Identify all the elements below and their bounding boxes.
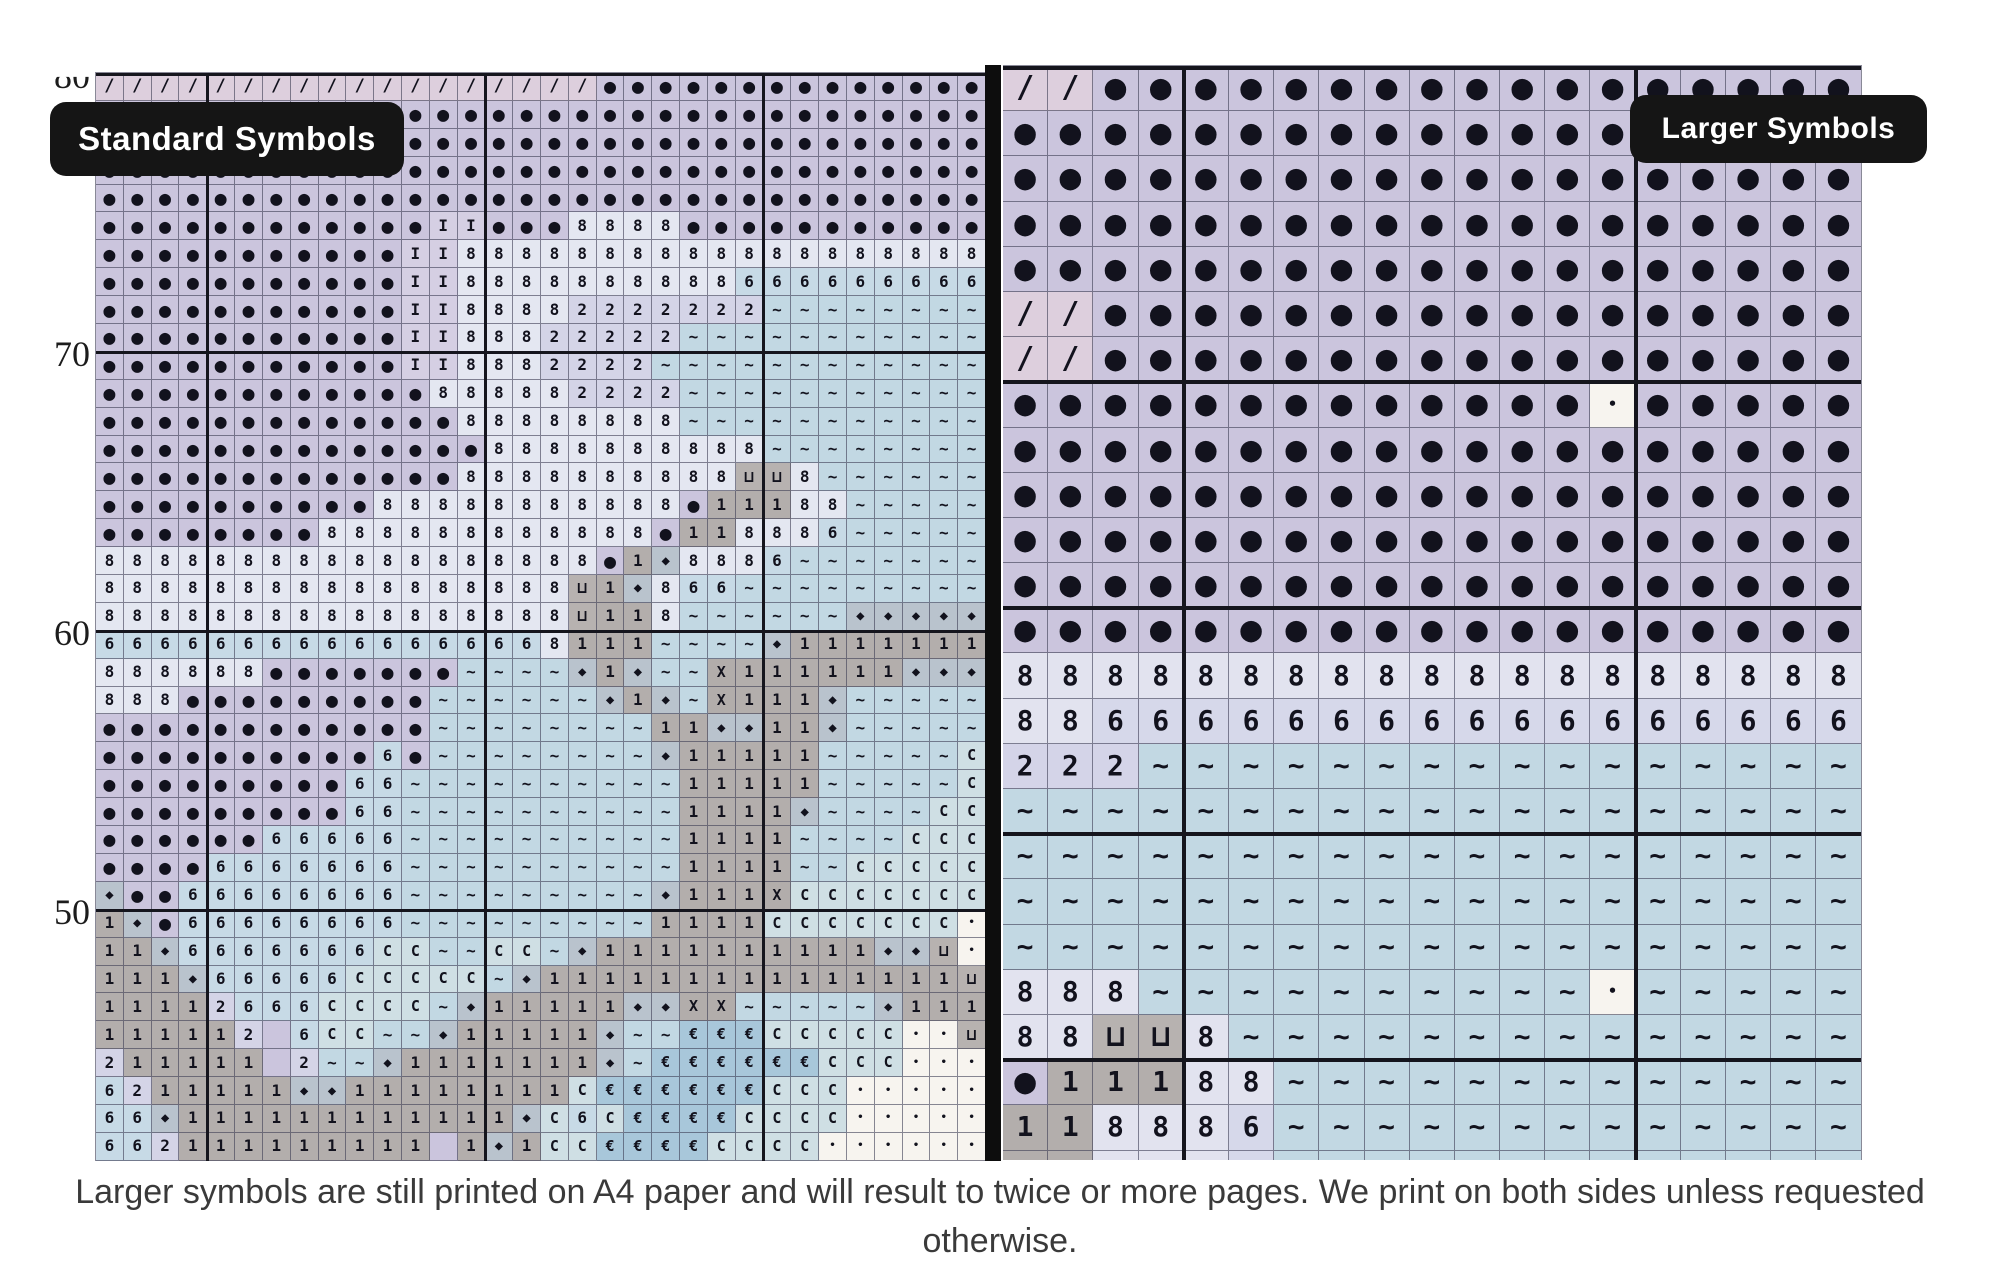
grid-cell: ● bbox=[235, 296, 263, 324]
grid-cell: 1 bbox=[764, 742, 792, 770]
grid-cell: ~ bbox=[1003, 879, 1048, 924]
grid-cell: / bbox=[291, 73, 319, 101]
grid-cell: ~ bbox=[1003, 834, 1048, 879]
grid-cell: ● bbox=[1636, 428, 1681, 473]
grid-cell: ● bbox=[430, 659, 458, 687]
grid-cell: ● bbox=[96, 268, 124, 296]
grid-cell: ● bbox=[152, 185, 180, 213]
grid-cell: • bbox=[819, 1133, 847, 1161]
grid-cell: ● bbox=[847, 101, 875, 129]
grid-cell: ~ bbox=[1545, 1015, 1590, 1060]
grid-cell: 8 bbox=[569, 463, 597, 491]
grid-cell: ● bbox=[346, 687, 374, 715]
grid-cell: 2 bbox=[652, 324, 680, 352]
grid-cell: ● bbox=[1590, 473, 1635, 518]
grid-cell: ~ bbox=[541, 659, 569, 687]
grid-cell: 8 bbox=[124, 659, 152, 687]
grid-cell: ~ bbox=[1455, 970, 1500, 1015]
grid-cell: ● bbox=[1139, 292, 1184, 337]
grid-cell: 1 bbox=[736, 854, 764, 882]
grid-cell: ● bbox=[207, 742, 235, 770]
grid-cell: ~ bbox=[1455, 1015, 1500, 1060]
grid-cell: ● bbox=[1500, 247, 1545, 292]
grid-cell: ~ bbox=[708, 631, 736, 659]
grid-cell: 1 bbox=[708, 910, 736, 938]
grid-cell: 8 bbox=[124, 547, 152, 575]
grid-cell: ~ bbox=[708, 603, 736, 631]
grid-cell: 8 bbox=[513, 324, 541, 352]
grid-cell: ~ bbox=[764, 352, 792, 380]
grid-cell: ● bbox=[1319, 247, 1364, 292]
grid-cell: ● bbox=[179, 826, 207, 854]
grid-cell: ~ bbox=[458, 770, 486, 798]
grid-cell: ~ bbox=[930, 463, 958, 491]
grid-cell: ● bbox=[207, 826, 235, 854]
grid-cell: 8 bbox=[597, 408, 625, 436]
grid-cell: 2 bbox=[541, 324, 569, 352]
grid-cell: 1 bbox=[485, 1077, 513, 1105]
grid-cell: ● bbox=[1048, 473, 1093, 518]
grid-cell: 1 bbox=[930, 631, 958, 659]
grid-cell: ~ bbox=[569, 770, 597, 798]
grid-cell: 6 bbox=[1184, 699, 1229, 744]
grid-cell: 8 bbox=[1681, 653, 1726, 698]
grid-cell: ● bbox=[1771, 247, 1816, 292]
grid-cell: ~ bbox=[847, 714, 875, 742]
grid-cell: 1 bbox=[96, 966, 124, 994]
grid-cell: ● bbox=[791, 212, 819, 240]
grid-cell: 1 bbox=[319, 1133, 347, 1161]
grid-cell: 6 bbox=[319, 631, 347, 659]
grid-cell: ⊔ bbox=[1093, 1015, 1138, 1060]
grid-cell: ◆ bbox=[624, 575, 652, 603]
grid-cell: X bbox=[708, 687, 736, 715]
grid-cell: 1 bbox=[235, 1049, 263, 1077]
major-grid-line-horizontal bbox=[96, 630, 985, 633]
grid-cell: ~ bbox=[708, 352, 736, 380]
grid-cell: 6 bbox=[152, 631, 180, 659]
grid-cell: € bbox=[764, 1049, 792, 1077]
grid-cell: ● bbox=[1274, 111, 1319, 156]
grid-cell: C bbox=[485, 938, 513, 966]
grid-cell: ● bbox=[1229, 382, 1274, 427]
grid-cell: 8 bbox=[958, 240, 985, 268]
grid-cell: ● bbox=[263, 659, 291, 687]
grid-cell: 8 bbox=[736, 436, 764, 464]
grid-cell: ~ bbox=[819, 547, 847, 575]
grid-cell: ● bbox=[1545, 473, 1590, 518]
grid-cell: ● bbox=[652, 73, 680, 101]
grid-cell: 1 bbox=[930, 993, 958, 1021]
grid-cell: ● bbox=[235, 463, 263, 491]
grid-cell: ● bbox=[1365, 292, 1410, 337]
grid-cell: 1 bbox=[680, 519, 708, 547]
grid-cell: 1 bbox=[513, 1133, 541, 1161]
major-grid-line-horizontal bbox=[96, 909, 985, 912]
grid-cell: ● bbox=[1410, 292, 1455, 337]
grid-cell: 6 bbox=[263, 631, 291, 659]
grid-cell: 6 bbox=[374, 854, 402, 882]
grid-cell: 1 bbox=[430, 1105, 458, 1133]
grid-cell: ● bbox=[207, 296, 235, 324]
grid-cell: ◆ bbox=[124, 910, 152, 938]
grid-cell: ● bbox=[1455, 428, 1500, 473]
grid-cell: ● bbox=[1184, 247, 1229, 292]
grid-cell: C bbox=[847, 854, 875, 882]
grid-cell: ~ bbox=[541, 770, 569, 798]
grid-cell: ~ bbox=[430, 687, 458, 715]
grid-cell: 8 bbox=[513, 408, 541, 436]
grid-cell: ~ bbox=[319, 1049, 347, 1077]
grid-cell: ● bbox=[1771, 156, 1816, 201]
grid-cell: ~ bbox=[930, 547, 958, 575]
grid-cell: ~ bbox=[569, 910, 597, 938]
grid-cell: ~ bbox=[1410, 1151, 1455, 1161]
grid-cell: • bbox=[847, 1077, 875, 1105]
grid-cell: ● bbox=[1274, 156, 1319, 201]
grid-cell: • bbox=[903, 1105, 931, 1133]
grid-cell: ~ bbox=[1365, 879, 1410, 924]
grid-cell: ~ bbox=[930, 770, 958, 798]
grid-cell: ● bbox=[1184, 563, 1229, 608]
chart-divider-bar bbox=[985, 65, 1001, 1161]
grid-cell: ~ bbox=[1726, 1015, 1771, 1060]
grid-cell: ● bbox=[1455, 473, 1500, 518]
grid-cell: 8 bbox=[1500, 653, 1545, 698]
grid-cell: ~ bbox=[597, 910, 625, 938]
grid-cell: ~ bbox=[1726, 879, 1771, 924]
grid-cell: ● bbox=[1184, 382, 1229, 427]
grid-cell: ● bbox=[1726, 202, 1771, 247]
grid-cell: 6 bbox=[791, 268, 819, 296]
grid-cell: ● bbox=[291, 714, 319, 742]
grid-cell: ● bbox=[1681, 247, 1726, 292]
grid-cell: ~ bbox=[736, 352, 764, 380]
grid-cell: ~ bbox=[736, 993, 764, 1021]
grid-cell: € bbox=[624, 1077, 652, 1105]
grid-cell: ● bbox=[1184, 608, 1229, 653]
grid-cell: C bbox=[930, 798, 958, 826]
grid-cell: ● bbox=[1319, 563, 1364, 608]
grid-cell: ● bbox=[179, 770, 207, 798]
grid-cell: ● bbox=[903, 73, 931, 101]
grid-cell: ● bbox=[179, 380, 207, 408]
grid-cell: ● bbox=[1545, 66, 1590, 111]
grid-cell: ~ bbox=[1681, 879, 1726, 924]
grid-cell: ● bbox=[1636, 292, 1681, 337]
grid-cell: C bbox=[903, 910, 931, 938]
grid-cell: C bbox=[736, 1133, 764, 1161]
grid-cell: ● bbox=[1636, 156, 1681, 201]
grid-cell: 1 bbox=[819, 966, 847, 994]
grid-cell: 1 bbox=[875, 659, 903, 687]
grid-cell: ~ bbox=[1816, 834, 1861, 879]
grid-cell: ~ bbox=[485, 798, 513, 826]
grid-cell: ● bbox=[708, 212, 736, 240]
grid-cell: 6 bbox=[124, 1133, 152, 1161]
grid-cell: 6 bbox=[1455, 699, 1500, 744]
grid-cell: ● bbox=[958, 157, 985, 185]
grid-cell: ~ bbox=[1636, 834, 1681, 879]
grid-cell: • bbox=[875, 1133, 903, 1161]
grid-cell: ~ bbox=[485, 714, 513, 742]
grid-cell: ~ bbox=[597, 826, 625, 854]
grid-cell: ● bbox=[402, 380, 430, 408]
grid-cell: ~ bbox=[736, 575, 764, 603]
grid-cell: ● bbox=[1771, 428, 1816, 473]
grid-cell: ~ bbox=[930, 687, 958, 715]
grid-cell: 8 bbox=[708, 268, 736, 296]
grid-cell: 8 bbox=[708, 463, 736, 491]
grid-cell: ● bbox=[1545, 337, 1590, 382]
grid-cell: ~ bbox=[1410, 879, 1455, 924]
grid-cell: 6 bbox=[96, 1133, 124, 1161]
grid-cell: 6 bbox=[263, 910, 291, 938]
grid-cell: 1 bbox=[1048, 1151, 1093, 1161]
grid-cell: ~ bbox=[819, 380, 847, 408]
grid-cell: ~ bbox=[875, 352, 903, 380]
grid-cell: 8 bbox=[847, 240, 875, 268]
grid-cell: ● bbox=[235, 436, 263, 464]
grid-cell: ● bbox=[875, 157, 903, 185]
grid-cell: ~ bbox=[541, 798, 569, 826]
grid-cell: 1 bbox=[764, 826, 792, 854]
grid-cell: 1 bbox=[652, 910, 680, 938]
grid-cell: ~ bbox=[930, 380, 958, 408]
grid-cell: ~ bbox=[485, 882, 513, 910]
grid-cell: ~ bbox=[458, 742, 486, 770]
grid-cell: 6 bbox=[1365, 699, 1410, 744]
grid-cell: 6 bbox=[346, 910, 374, 938]
grid-cell: ~ bbox=[1455, 879, 1500, 924]
grid-cell: ● bbox=[1455, 66, 1500, 111]
grid-cell: 1 bbox=[207, 1049, 235, 1077]
grid-cell: C bbox=[903, 826, 931, 854]
grid-cell: ● bbox=[1229, 66, 1274, 111]
grid-cell: ● bbox=[458, 436, 486, 464]
grid-cell: 8 bbox=[1410, 653, 1455, 698]
grid-cell: ● bbox=[1184, 156, 1229, 201]
grid-cell: ~ bbox=[1816, 744, 1861, 789]
grid-cell: ~ bbox=[1771, 1060, 1816, 1105]
row-number-60: 60 bbox=[26, 612, 90, 654]
grid-cell: / bbox=[207, 73, 235, 101]
grid-cell: 6 bbox=[319, 854, 347, 882]
grid-cell: ● bbox=[152, 798, 180, 826]
grid-cell: 1 bbox=[96, 1021, 124, 1049]
grid-cell: ● bbox=[597, 73, 625, 101]
grid-cell: ~ bbox=[819, 603, 847, 631]
grid-cell: C bbox=[764, 1105, 792, 1133]
grid-cell: 8 bbox=[930, 240, 958, 268]
grid-cell: ◆ bbox=[430, 1021, 458, 1049]
grid-cell: / bbox=[1048, 337, 1093, 382]
grid-cell: ● bbox=[1771, 337, 1816, 382]
grid-cell: 1 bbox=[235, 1077, 263, 1105]
grid-cell: ● bbox=[124, 519, 152, 547]
grid-cell: ~ bbox=[1410, 789, 1455, 834]
grid-cell: ~ bbox=[680, 603, 708, 631]
grid-cell: 8 bbox=[152, 659, 180, 687]
grid-cell: ● bbox=[1726, 292, 1771, 337]
grid-cell: ● bbox=[930, 212, 958, 240]
grid-cell: ● bbox=[1455, 292, 1500, 337]
grid-cell: 8 bbox=[541, 296, 569, 324]
grid-cell: ◆ bbox=[652, 993, 680, 1021]
grid-cell: ~ bbox=[1319, 879, 1364, 924]
grid-cell: C bbox=[847, 1049, 875, 1077]
grid-cell: 8 bbox=[458, 491, 486, 519]
grid-cell: ~ bbox=[903, 296, 931, 324]
grid-cell: 8 bbox=[485, 463, 513, 491]
grid-cell: ~ bbox=[1500, 879, 1545, 924]
grid-cell: ● bbox=[1274, 518, 1319, 563]
grid-cell: 8 bbox=[263, 547, 291, 575]
grid-cell: 1 bbox=[124, 1049, 152, 1077]
grid-cell: 1 bbox=[708, 519, 736, 547]
grid-cell: / bbox=[1003, 66, 1048, 111]
grid-cell: 1 bbox=[764, 798, 792, 826]
grid-cell: ● bbox=[402, 212, 430, 240]
grid-cell: ● bbox=[1590, 247, 1635, 292]
grid-cell: ~ bbox=[1048, 789, 1093, 834]
grid-cell: ● bbox=[1319, 382, 1364, 427]
grid-cell: 1 bbox=[624, 631, 652, 659]
grid-cell: 8 bbox=[1003, 970, 1048, 1015]
grid-cell: ● bbox=[179, 408, 207, 436]
grid-cell: 6 bbox=[291, 854, 319, 882]
grid-cell: ~ bbox=[680, 687, 708, 715]
grid-cell: ~ bbox=[1726, 1060, 1771, 1105]
grid-cell: ~ bbox=[1816, 1151, 1861, 1161]
grid-cell: ~ bbox=[1274, 1151, 1319, 1161]
grid-cell: C bbox=[374, 966, 402, 994]
grid-cell: • bbox=[930, 1133, 958, 1161]
grid-cell: ● bbox=[346, 212, 374, 240]
grid-cell: ● bbox=[875, 101, 903, 129]
grid-cell: / bbox=[346, 73, 374, 101]
grid-cell: 8 bbox=[1274, 653, 1319, 698]
grid-cell: ~ bbox=[1590, 1060, 1635, 1105]
grid-cell: ~ bbox=[958, 324, 985, 352]
grid-cell: • bbox=[903, 1077, 931, 1105]
grid-cell: 1 bbox=[764, 966, 792, 994]
grid-cell: 1 bbox=[346, 1105, 374, 1133]
grid-cell: ● bbox=[124, 463, 152, 491]
major-grid-line-vertical bbox=[1182, 66, 1186, 1160]
grid-cell: 1 bbox=[652, 966, 680, 994]
grid-cell: ~ bbox=[597, 854, 625, 882]
grid-cell: ~ bbox=[764, 993, 792, 1021]
grid-cell: / bbox=[1048, 292, 1093, 337]
grid-cell: ● bbox=[402, 129, 430, 157]
grid-cell: 8 bbox=[1048, 699, 1093, 744]
grid-cell: ~ bbox=[680, 380, 708, 408]
grid-cell: ~ bbox=[930, 436, 958, 464]
grid-cell: ~ bbox=[875, 296, 903, 324]
grid-cell: 8 bbox=[1093, 1151, 1138, 1161]
grid-cell: ~ bbox=[1274, 925, 1319, 970]
grid-cell: 1 bbox=[791, 966, 819, 994]
grid-cell: ~ bbox=[819, 770, 847, 798]
grid-cell: 1 bbox=[597, 659, 625, 687]
grid-cell: ● bbox=[1229, 337, 1274, 382]
grid-cell: ~ bbox=[1229, 925, 1274, 970]
grid-cell: • bbox=[1590, 970, 1635, 1015]
grid-cell: ● bbox=[1274, 563, 1319, 608]
grid-cell: ● bbox=[152, 910, 180, 938]
grid-cell: ~ bbox=[847, 408, 875, 436]
grid-cell: ● bbox=[680, 212, 708, 240]
grid-cell: 1 bbox=[1003, 1151, 1048, 1161]
grid-cell: 8 bbox=[458, 240, 486, 268]
grid-cell: ~ bbox=[1590, 879, 1635, 924]
grid-cell: ● bbox=[819, 129, 847, 157]
grid-cell: ~ bbox=[1410, 1105, 1455, 1150]
grid-cell: • bbox=[847, 1133, 875, 1161]
grid-cell: 8 bbox=[652, 240, 680, 268]
grid-cell: ◆ bbox=[903, 938, 931, 966]
grid-cell: ● bbox=[1229, 428, 1274, 473]
grid-cell: 6 bbox=[124, 631, 152, 659]
grid-cell: ~ bbox=[1816, 970, 1861, 1015]
grid-cell: 8 bbox=[458, 463, 486, 491]
grid-cell: ● bbox=[346, 268, 374, 296]
grid-cell: 1 bbox=[736, 491, 764, 519]
grid-cell: ● bbox=[1229, 608, 1274, 653]
grid-cell: ● bbox=[152, 408, 180, 436]
grid-cell: ● bbox=[819, 101, 847, 129]
grid-cell: 8 bbox=[736, 519, 764, 547]
grid-cell: 6 bbox=[513, 631, 541, 659]
grid-cell: 6 bbox=[96, 631, 124, 659]
grid-cell: 8 bbox=[541, 547, 569, 575]
grid-cell: ~ bbox=[624, 882, 652, 910]
grid-cell: ~ bbox=[1816, 1060, 1861, 1105]
grid-cell: ⊔ bbox=[1139, 1015, 1184, 1060]
grid-cell: ● bbox=[1410, 337, 1455, 382]
grid-cell: 8 bbox=[597, 212, 625, 240]
grid-cell: 6 bbox=[1816, 699, 1861, 744]
grid-cell: ~ bbox=[652, 826, 680, 854]
grid-cell: ● bbox=[319, 380, 347, 408]
grid-cell: ● bbox=[847, 129, 875, 157]
grid-cell: C bbox=[569, 1077, 597, 1105]
grid-cell: 8 bbox=[124, 603, 152, 631]
grid-cell: 2 bbox=[152, 1133, 180, 1161]
grid-cell: 1 bbox=[791, 938, 819, 966]
grid-cell: ● bbox=[1636, 247, 1681, 292]
grid-cell: ● bbox=[958, 129, 985, 157]
grid-cell: ~ bbox=[430, 854, 458, 882]
grid-cell: ● bbox=[736, 157, 764, 185]
grid-cell: ● bbox=[235, 324, 263, 352]
grid-cell: 1 bbox=[791, 770, 819, 798]
grid-cell: 8 bbox=[1003, 1015, 1048, 1060]
grid-cell: 6 bbox=[179, 910, 207, 938]
grid-cell: ● bbox=[1319, 111, 1364, 156]
grid-cell: 6 bbox=[235, 938, 263, 966]
grid-cell: ~ bbox=[819, 742, 847, 770]
grid-cell: ◆ bbox=[513, 966, 541, 994]
grid-cell: 8 bbox=[680, 547, 708, 575]
grid-cell: 2 bbox=[597, 324, 625, 352]
grid-cell: ~ bbox=[1455, 789, 1500, 834]
grid-cell: ● bbox=[374, 687, 402, 715]
grid-cell: ~ bbox=[791, 324, 819, 352]
grid-cell: 1 bbox=[847, 631, 875, 659]
grid-cell: ● bbox=[1003, 518, 1048, 563]
